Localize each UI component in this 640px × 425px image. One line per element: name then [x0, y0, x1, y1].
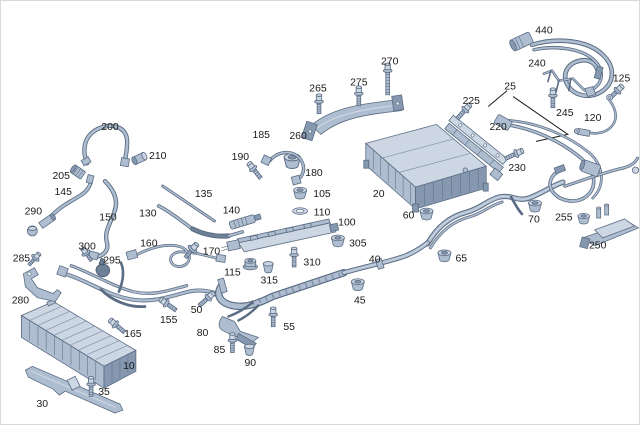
- part-90-plug: [244, 344, 254, 355]
- part-105-grommet: [294, 187, 307, 199]
- part-45-grommet: [351, 279, 364, 291]
- callout-265[interactable]: 265: [309, 83, 327, 94]
- callout-140[interactable]: 140: [223, 206, 241, 217]
- part-245-bolt: [549, 88, 558, 108]
- part-205-sleeve: [69, 164, 85, 179]
- callout-210[interactable]: 210: [149, 151, 167, 162]
- callout-110[interactable]: 110: [314, 208, 331, 219]
- parts-diagram: 4402402701252752652522524512022018526020…: [0, 0, 640, 425]
- callout-285[interactable]: 285: [13, 253, 31, 264]
- callout-105[interactable]: 105: [313, 189, 331, 200]
- callout-165[interactable]: 165: [124, 329, 142, 340]
- callout-10[interactable]: 10: [123, 361, 135, 372]
- callout-135[interactable]: 135: [195, 189, 213, 200]
- callout-260[interactable]: 260: [289, 131, 307, 142]
- callout-50[interactable]: 50: [191, 305, 203, 316]
- callout-25[interactable]: 25: [504, 81, 516, 92]
- callout-280[interactable]: 280: [12, 295, 30, 306]
- part-60-grommet: [420, 208, 433, 220]
- callout-225[interactable]: 225: [463, 96, 481, 107]
- callout-170[interactable]: 170: [203, 247, 221, 258]
- part-55-bolt: [269, 307, 278, 327]
- callout-250[interactable]: 250: [589, 241, 607, 252]
- callout-120[interactable]: 120: [584, 113, 602, 124]
- callout-230[interactable]: 230: [508, 163, 526, 174]
- callout-115[interactable]: 115: [224, 267, 241, 278]
- callout-20[interactable]: 20: [373, 189, 385, 200]
- callout-440[interactable]: 440: [535, 26, 553, 37]
- callout-300[interactable]: 300: [78, 242, 96, 253]
- callout-255[interactable]: 255: [555, 213, 573, 224]
- callout-35[interactable]: 35: [98, 387, 110, 398]
- callout-315[interactable]: 315: [261, 275, 279, 286]
- part-310-bolt: [290, 247, 299, 267]
- part-40-cable-duct: [218, 243, 428, 321]
- callout-55[interactable]: 55: [283, 322, 295, 333]
- callout-240[interactable]: 240: [528, 58, 546, 69]
- part-85-bolt: [228, 333, 237, 353]
- part-255-grommet: [578, 213, 590, 224]
- callout-295[interactable]: 295: [103, 255, 121, 266]
- part-110-seal-ring: [293, 208, 308, 215]
- callout-205[interactable]: 205: [53, 171, 71, 182]
- callout-290[interactable]: 290: [25, 207, 43, 218]
- callout-65[interactable]: 65: [456, 253, 468, 264]
- callout-125[interactable]: 125: [613, 73, 631, 84]
- callout-80[interactable]: 80: [197, 328, 209, 339]
- callout-200[interactable]: 200: [101, 122, 119, 133]
- callout-305[interactable]: 305: [349, 239, 367, 250]
- callout-275[interactable]: 275: [350, 77, 368, 88]
- callout-190[interactable]: 190: [232, 152, 250, 163]
- callout-270[interactable]: 270: [381, 56, 399, 67]
- callout-60[interactable]: 60: [403, 211, 415, 222]
- callout-150[interactable]: 150: [99, 213, 117, 224]
- callout-100[interactable]: 100: [338, 218, 356, 229]
- part-230-bolt: [503, 146, 525, 162]
- callout-90[interactable]: 90: [245, 358, 257, 369]
- part-265-bolt: [315, 94, 324, 114]
- callout-45[interactable]: 45: [354, 295, 366, 306]
- part-190-bolt: [245, 160, 264, 181]
- callout-130[interactable]: 130: [139, 209, 157, 220]
- part-210-connector: [131, 151, 148, 165]
- part-65-grommet: [438, 250, 451, 262]
- callout-145[interactable]: 145: [55, 187, 73, 198]
- part-275-bolt: [354, 86, 363, 106]
- callout-40[interactable]: 40: [369, 254, 381, 265]
- callout-310[interactable]: 310: [303, 257, 321, 268]
- part-305-grommet: [331, 235, 344, 247]
- part-180-cable-loop: [261, 153, 304, 186]
- callout-160[interactable]: 160: [140, 239, 158, 250]
- part-315-plug: [263, 262, 273, 273]
- callout-30[interactable]: 30: [37, 399, 49, 410]
- callout-155[interactable]: 155: [160, 315, 178, 326]
- callout-185[interactable]: 185: [253, 130, 271, 141]
- callout-180[interactable]: 180: [305, 168, 323, 179]
- callout-70[interactable]: 70: [528, 215, 540, 226]
- part-wiring-harness-left: [57, 263, 224, 307]
- part-70-grommet: [529, 200, 542, 212]
- part-440-cable-assembly: [508, 32, 612, 96]
- callout-245[interactable]: 245: [556, 108, 574, 119]
- callout-220[interactable]: 220: [489, 122, 507, 133]
- callout-85[interactable]: 85: [214, 345, 226, 356]
- part-270-bolt: [383, 63, 392, 95]
- part-115-spool: [243, 258, 257, 270]
